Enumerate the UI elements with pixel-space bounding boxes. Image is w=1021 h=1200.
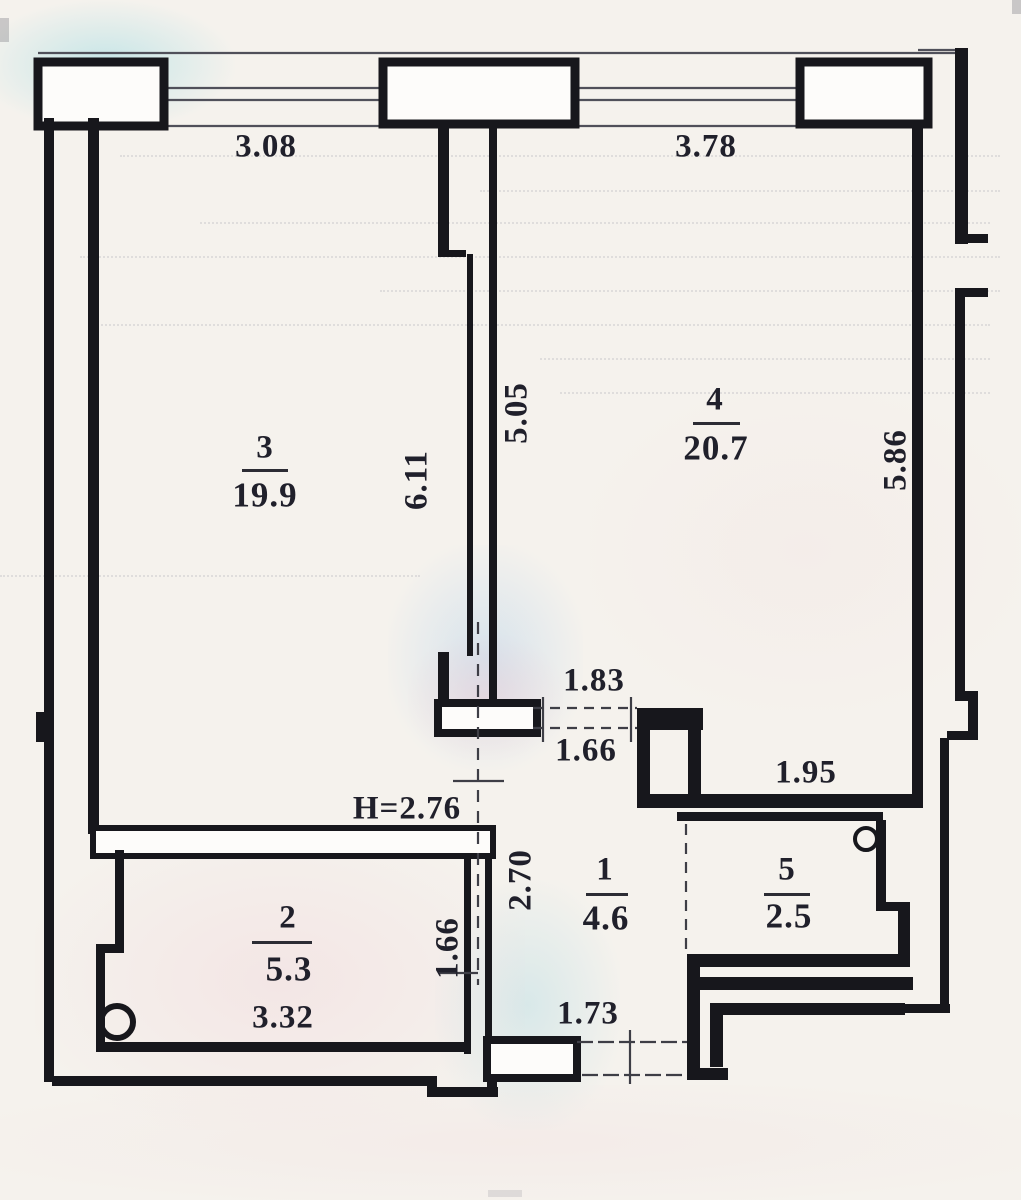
door-symbol-circle-room5: [855, 828, 877, 850]
floor-plan: 3.08 3.78 6.11 5.05 5.86 3 19.9 4 20.7 1…: [0, 0, 1021, 1200]
dim-room4-door-inner: 1.66: [555, 735, 617, 768]
dim-room4-alcove: 1.95: [775, 757, 837, 790]
room1-number-label: 1: [596, 854, 614, 887]
dim-entry-opening: 1.73: [557, 998, 619, 1031]
room5-number-label: 5: [778, 854, 796, 887]
room3-fraction-bar: [242, 469, 288, 472]
room4-fraction-bar: [693, 422, 740, 425]
room3-area-label: 19.9: [232, 478, 297, 513]
dim-room2-width: 3.32: [252, 1002, 314, 1035]
room4-number-label: 4: [706, 384, 724, 417]
dim-room4-left-wall: 5.05: [501, 382, 534, 444]
room5-area-label: 2.5: [766, 899, 813, 934]
floor-plan-drawing: [0, 0, 1021, 1200]
ceiling-height-label: H=2.76: [353, 793, 461, 826]
dim-room2-right-wall: 1.66: [432, 917, 465, 979]
dim-window-left: 3.08: [235, 131, 297, 164]
dim-room3-right-wall: 6.11: [401, 450, 434, 510]
room1-fraction-bar: [586, 893, 628, 896]
dim-room4-door-outer: 1.83: [563, 665, 625, 698]
room1-area-label: 4.6: [583, 901, 630, 936]
dim-hall-left-wall: 2.70: [505, 849, 538, 911]
interior-walls: [88, 118, 923, 1097]
exterior-walls: [36, 48, 988, 1097]
room2-area-label: 5.3: [266, 952, 313, 987]
dim-room4-right-wall: 5.86: [880, 429, 913, 491]
room3-number-label: 3: [256, 432, 274, 465]
room2-fraction-bar: [252, 941, 312, 944]
room4-area-label: 20.7: [683, 431, 748, 466]
room2-number-label: 2: [279, 902, 297, 935]
door-symbol-circle-room2: [101, 1006, 133, 1038]
dim-window-right: 3.78: [675, 131, 737, 164]
